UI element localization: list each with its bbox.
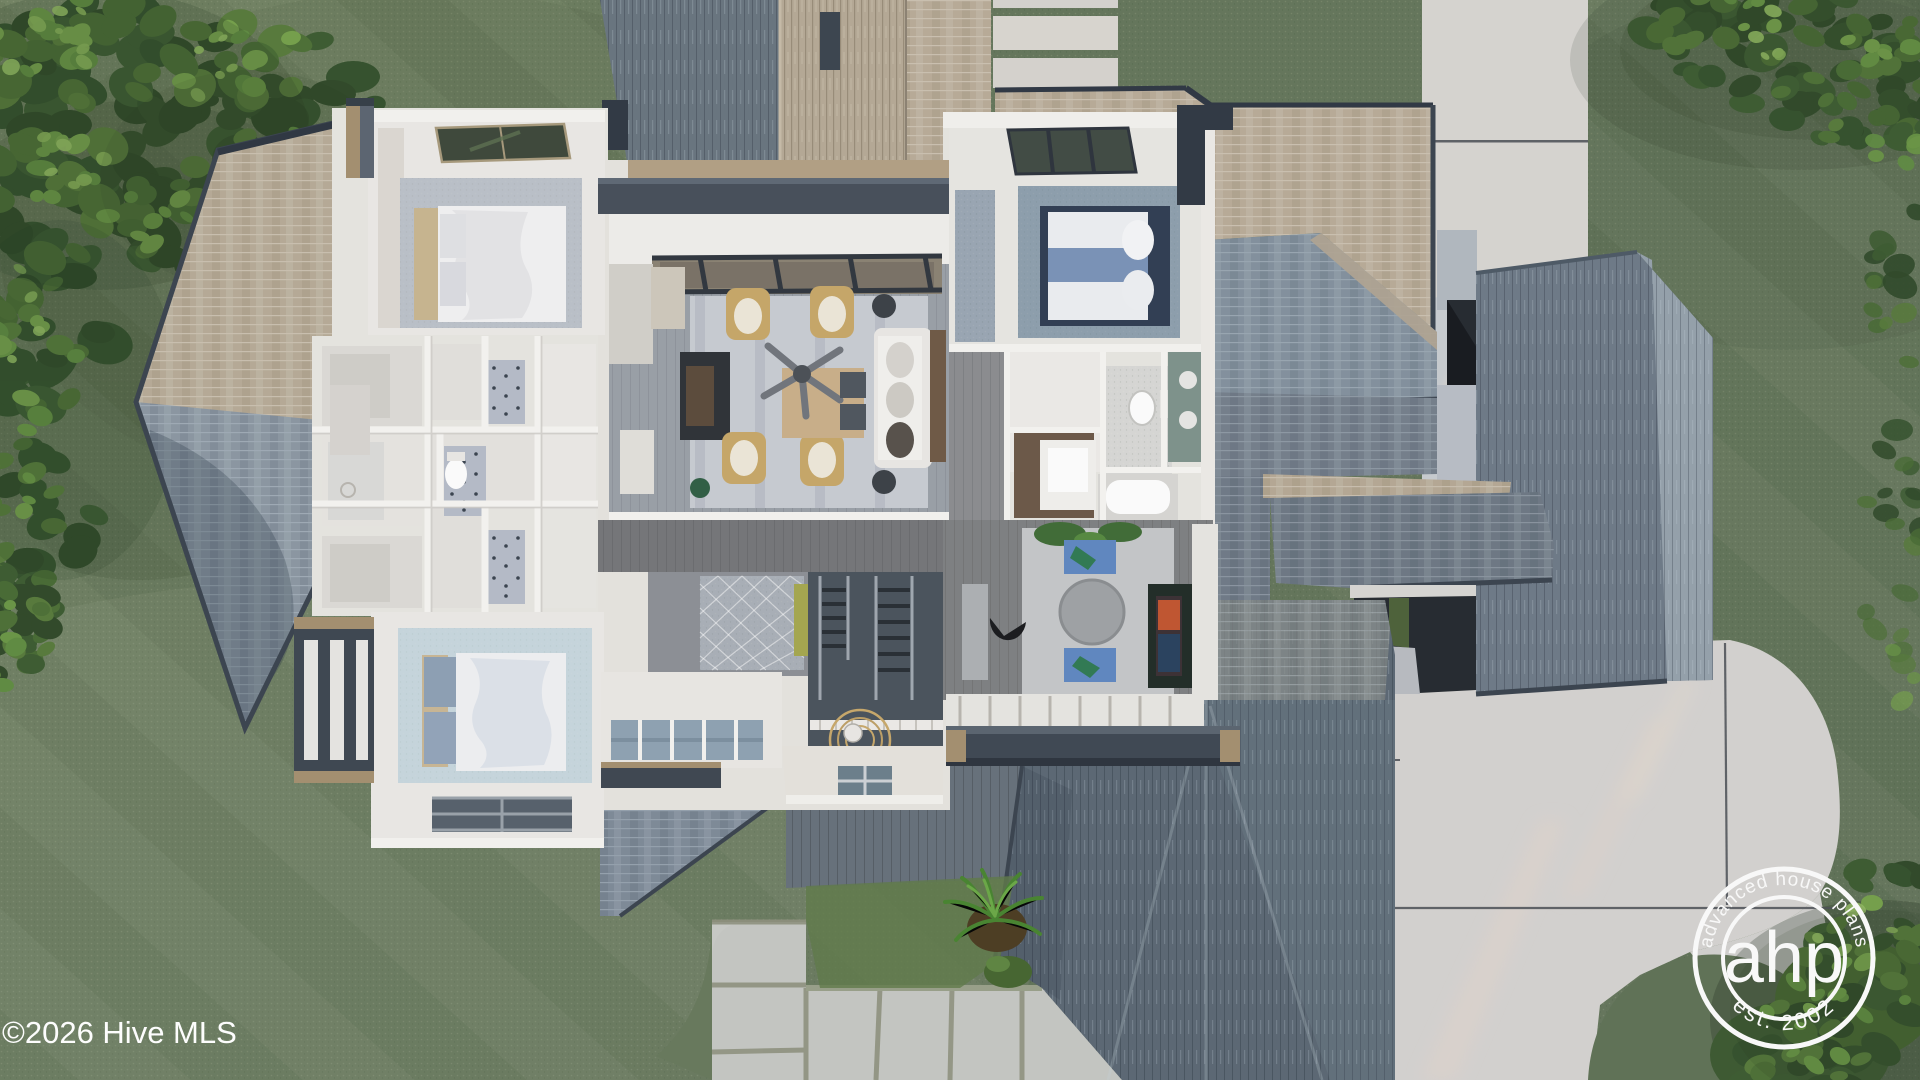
- svg-text:©2026 Hive MLS: ©2026 Hive MLS: [2, 1015, 237, 1050]
